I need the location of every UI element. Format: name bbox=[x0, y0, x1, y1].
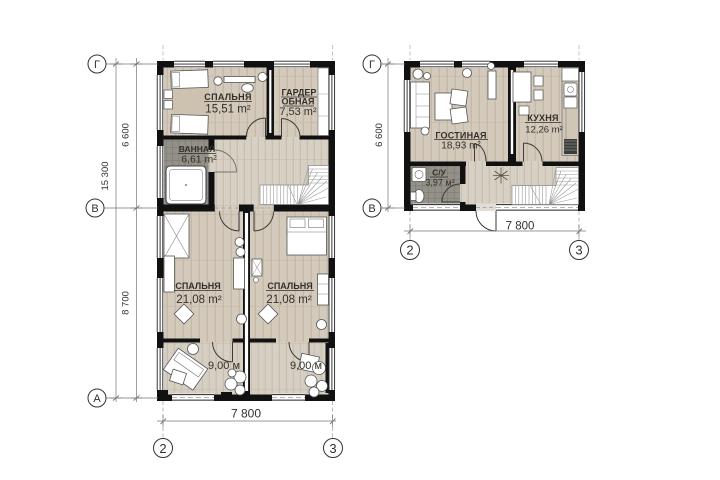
svg-text:18,93 m²: 18,93 m² bbox=[441, 141, 481, 152]
svg-text:7 800: 7 800 bbox=[231, 407, 261, 421]
svg-text:21,08 m²: 21,08 m² bbox=[266, 294, 312, 306]
svg-text:15,51 m²: 15,51 m² bbox=[205, 104, 251, 116]
svg-text:2: 2 bbox=[406, 243, 413, 258]
svg-text:КУХНЯ: КУХНЯ bbox=[527, 113, 558, 123]
svg-text:СПАЛЬНЯ: СПАЛЬНЯ bbox=[204, 92, 251, 102]
svg-text:6 600: 6 600 bbox=[121, 123, 132, 147]
svg-text:6 600: 6 600 bbox=[374, 123, 385, 147]
svg-text:В: В bbox=[368, 203, 375, 215]
svg-text:12,26 m²: 12,26 m² bbox=[525, 125, 563, 136]
svg-text:9,00 м: 9,00 м bbox=[208, 360, 240, 372]
svg-text:8 700: 8 700 bbox=[121, 291, 132, 315]
svg-text:ВАННАЯ: ВАННАЯ bbox=[179, 144, 215, 154]
svg-text:15 300: 15 300 bbox=[100, 161, 111, 190]
svg-text:СПАЛЬНЯ: СПАЛЬНЯ bbox=[175, 281, 220, 291]
svg-text:7,53 m²: 7,53 m² bbox=[279, 106, 317, 118]
svg-text:Г: Г bbox=[94, 59, 100, 71]
svg-text:3,97 м²: 3,97 м² bbox=[425, 178, 454, 188]
svg-text:9,00 м: 9,00 м bbox=[290, 360, 322, 372]
svg-text:А: А bbox=[93, 393, 101, 405]
svg-text:С/У: С/У bbox=[432, 168, 447, 178]
svg-text:3: 3 bbox=[575, 243, 582, 258]
svg-text:ГОСТИНАЯ: ГОСТИНАЯ bbox=[435, 131, 486, 141]
svg-text:Г: Г bbox=[369, 59, 375, 71]
svg-text:21,08 m²: 21,08 m² bbox=[176, 294, 222, 306]
svg-text:3: 3 bbox=[329, 441, 336, 456]
svg-text:СПАЛЬНЯ: СПАЛЬНЯ bbox=[267, 281, 312, 291]
svg-text:ОБНАЯ: ОБНАЯ bbox=[282, 97, 315, 107]
svg-text:6,61 m²: 6,61 m² bbox=[181, 154, 217, 166]
svg-text:2: 2 bbox=[159, 441, 166, 456]
svg-text:В: В bbox=[91, 203, 98, 215]
svg-text:7 800: 7 800 bbox=[506, 221, 535, 233]
